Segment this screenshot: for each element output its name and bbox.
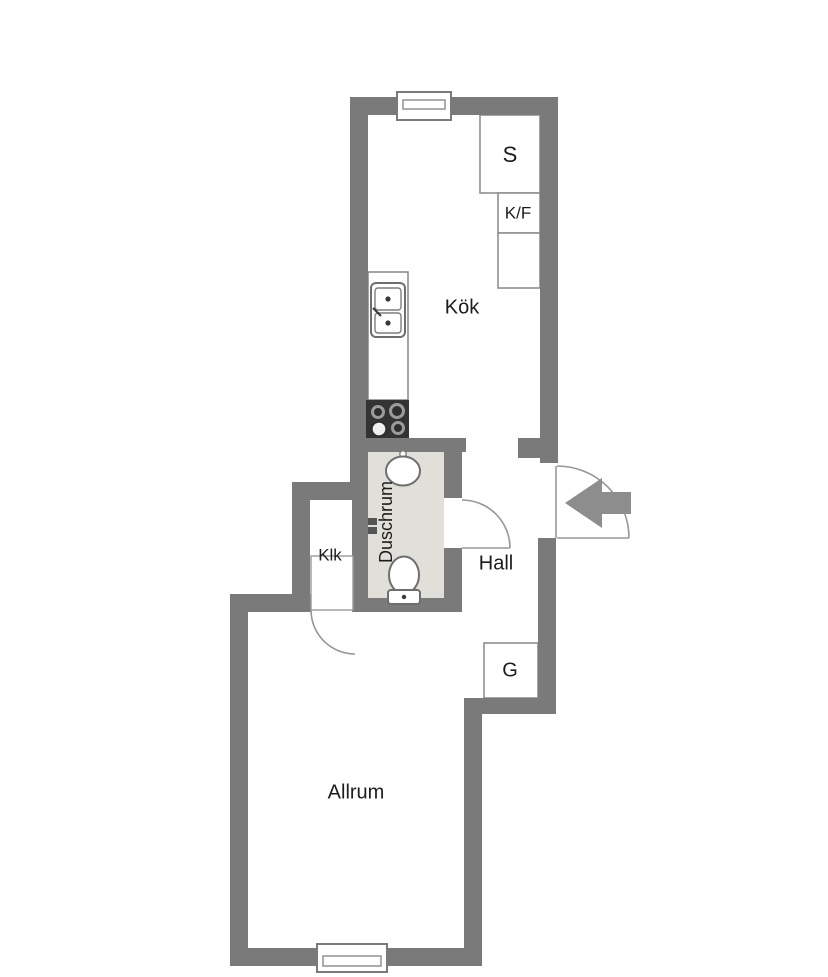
wall-kitchen-bottom <box>350 438 466 452</box>
sink-drain <box>385 320 390 325</box>
label-room-klk: Klk <box>318 545 342 564</box>
floor-plan-svg: S K/F Kök Duschrum Klk Hall G Allrum <box>0 0 828 977</box>
wall-hall-bottom <box>464 698 556 714</box>
label-room-kok: Kök <box>445 296 480 318</box>
label-room-allrum: Allrum <box>328 781 385 803</box>
wall-top <box>350 97 558 115</box>
label-fridge-freezer: K/F <box>505 203 531 222</box>
door-swing-arc <box>311 610 355 654</box>
wall-right-lower <box>538 538 556 698</box>
kitchen-counter <box>368 272 408 400</box>
window-sash <box>323 956 381 966</box>
klk-door <box>311 556 355 654</box>
sink-drain <box>385 296 390 301</box>
door-swing-arc <box>462 500 510 548</box>
burner <box>391 405 404 418</box>
label-room-duschrum: Duschrum <box>376 481 396 563</box>
wall-kitchen-doorway-stub <box>518 438 540 458</box>
entry-door <box>556 466 631 538</box>
window-sash <box>403 100 445 109</box>
wall-left-upper <box>350 97 368 482</box>
burner <box>373 407 384 418</box>
window-icon-bottom <box>317 944 387 972</box>
wall-allrum-left <box>230 612 248 966</box>
label-room-hall: Hall <box>479 552 513 574</box>
stove-icon <box>366 400 409 438</box>
wall-allrum-right <box>464 712 482 966</box>
wall-duschrum-left <box>352 500 368 612</box>
floor-plan: S K/F Kök Duschrum Klk Hall G Allrum <box>0 0 828 977</box>
toilet-button <box>402 595 406 599</box>
wall-klk-top <box>292 482 368 500</box>
entry-arrow-icon <box>565 478 631 528</box>
duschrum-door <box>462 500 510 548</box>
label-wardrobe-g: G <box>502 659 518 681</box>
window-icon-top <box>397 92 451 120</box>
wall-duschrum-right-upper <box>444 452 462 498</box>
fridge-freezer-lower-box <box>498 233 540 288</box>
burner <box>393 423 404 434</box>
burner-large <box>372 422 387 437</box>
wall-klk-bottom-jog <box>230 594 311 612</box>
wall-right-upper <box>540 97 558 463</box>
label-closet-s: S <box>503 142 518 167</box>
